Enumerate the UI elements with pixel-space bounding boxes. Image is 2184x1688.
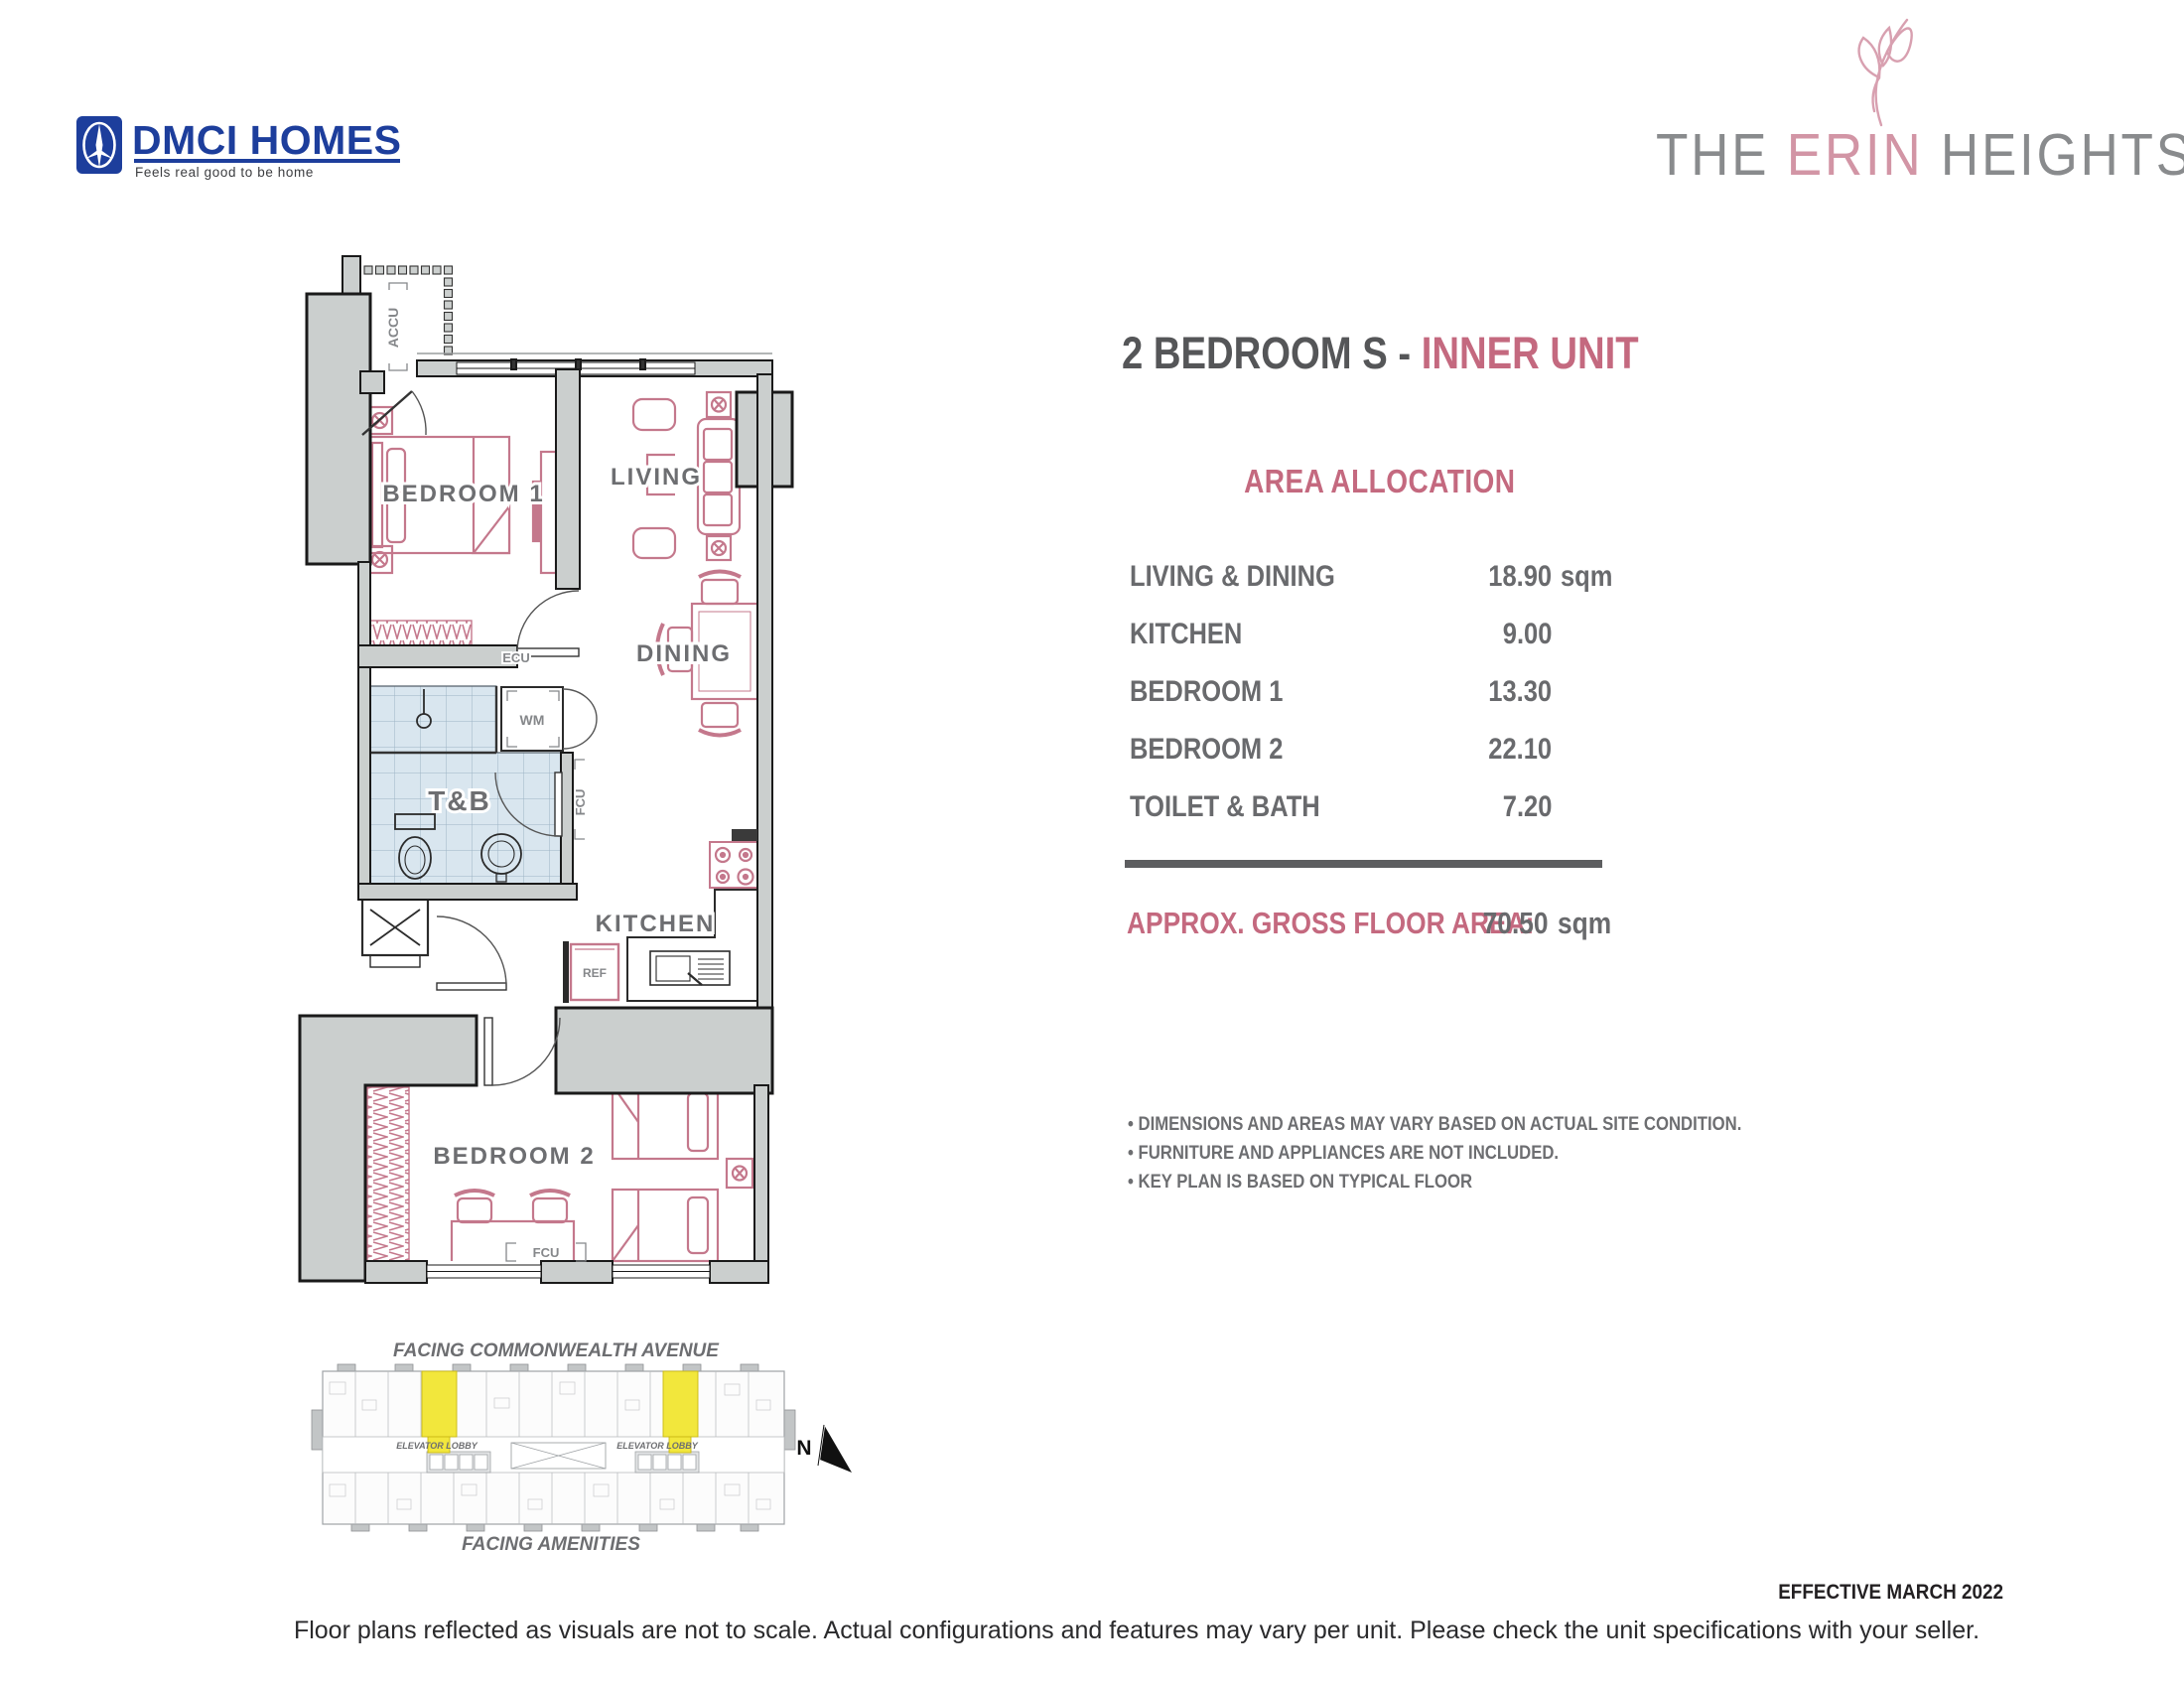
pillar [342,256,360,298]
bedroom2-bed [613,1085,718,1159]
fcu-bedroom2-label: FCU [533,1245,560,1260]
area-row: LIVING & DINING 18.90 sqm [1130,560,1371,596]
unit-title-main: 2 BEDROOM S - [1122,328,1422,378]
area-row-value: 18.90 [1488,560,1552,594]
right-wall [757,374,772,1029]
living-side-table [707,392,731,417]
key-plan: FACING COMMONWEALTH AVENUE [308,1340,864,1559]
unit-title: 2 BEDROOM S - INNER UNIT [1032,328,1727,379]
dining-label: DINING [636,640,732,667]
ref-label: REF [583,966,607,980]
dmci-logo-underline [134,159,400,163]
bedroom2-bed [613,1190,718,1261]
toilet-bath-bottom-wall [358,884,577,900]
wm-double-doors [563,689,597,749]
erin-logo-the: THE [1656,122,1787,188]
living-armchair [633,399,675,430]
dining-chair [699,703,741,736]
area-row: TOILET & BATH 7.20 [1130,790,1354,826]
area-row: BEDROOM 1 13.30 [1130,675,1310,711]
bedroom2-label: BEDROOM 2 [433,1143,595,1170]
floor-plan-drawing: ACCU WM ECU FCU FCU REF BEDROOM 1 LIVING… [213,179,839,1301]
bedroom2-chair [530,1191,570,1222]
note-line: • DIMENSIONS AND AREAS MAY VARY BASED ON… [1128,1114,1826,1136]
balcony-door [362,391,426,435]
effective-date: EFFECTIVE MARCH 2022 [1753,1581,2003,1605]
area-allocation-heading: AREA ALLOCATION [1032,463,1727,500]
erin-logo-erin: ERIN [1787,122,1924,188]
accu-label: ACCU [385,308,401,348]
elevator-lobby-label: ELEVATOR LOBBY [396,1441,478,1451]
bedroom2-door [484,1018,560,1085]
area-row-value: 13.30 [1488,675,1552,709]
bedroom2-top-wall [556,1008,772,1093]
disclaimer-text: Floor plans reflected as visuals are not… [154,1617,2119,1645]
erin-leaf-icon [1830,16,1915,127]
note-line: • KEY PLAN IS BASED ON TYPICAL FLOOR [1128,1172,1519,1194]
key-plan-bottom-label: FACING AMENITIES [462,1534,640,1555]
toilet-bath-label: T&B [428,785,491,816]
area-row-value: 22.10 [1488,733,1552,767]
kitchen-label: KITCHEN [596,911,716,937]
area-row: KITCHEN 9.00 [1130,618,1262,653]
gross-floor-area-value: 70.50 [1483,906,1549,941]
erin-logo-heights: HEIGHTS [1923,122,2184,188]
ecu-label: ECU [502,650,529,665]
area-row-unit: sqm [1561,560,1612,594]
dmci-logo-icon [76,116,122,174]
key-plan-building: ELEVATOR LOBBY ELEVATOR LOBBY [312,1364,795,1531]
north-label: N [796,1437,811,1460]
key-plan-top-label: FACING COMMONWEALTH AVENUE [393,1340,720,1361]
bedroom2-nightstand [727,1159,752,1188]
bottom-wall-pier [541,1261,613,1283]
bedroom2-wardrobe [367,1087,409,1261]
fcu-hall-label: FCU [573,789,588,816]
left-wall [358,562,370,900]
north-arrow-icon [818,1425,852,1473]
living-armchair [633,528,675,558]
gross-floor-area-row: APPROX. GROSS FLOOR AREA: 70.50 sqm [1127,906,1606,941]
partition-wall [556,369,580,589]
gross-floor-area-unit: sqm [1558,906,1611,941]
entry-door [437,916,506,990]
dmci-logo-text: DMCI HOMES [132,117,402,164]
dining-chair [699,572,741,605]
kitchen-stove [710,842,757,888]
toilet-bath-right-wall [561,753,573,884]
area-row-value: 7.20 [1502,790,1552,824]
wm-label: WM [520,712,545,728]
area-row: BEDROOM 2 22.10 [1130,733,1310,769]
area-row-label: BEDROOM 1 [1130,675,1283,709]
dmci-logo-tagline: Feels real good to be home [135,165,314,180]
bedroom1-dresser [541,452,556,573]
table-divider [1125,860,1602,868]
unit-title-highlight: INNER UNIT [1421,328,1638,378]
bedroom1-bottom-wall [358,645,517,667]
bedroom1-label: BEDROOM 1 [382,481,544,507]
area-row-label: KITCHEN [1130,618,1242,651]
note-line: • FURNITURE AND APPLIANCES ARE NOT INCLU… [1128,1143,1617,1165]
area-row-label: TOILET & BATH [1130,790,1320,824]
shaft-box [362,900,428,967]
area-row-label: BEDROOM 2 [1130,733,1283,767]
elevator-lobby-label: ELEVATOR LOBBY [616,1441,699,1451]
bedroom2-right-wall [754,1085,768,1263]
area-row-value: 9.00 [1502,618,1552,651]
living-label: LIVING [611,464,702,491]
pillar [307,294,370,564]
floor-plan-page: DMCI HOMES Feels real good to be home TH… [0,0,2184,1688]
bedroom2-chair [455,1191,494,1222]
kitchen-counter [627,890,757,1001]
bottom-wall-pier [365,1261,427,1283]
erin-heights-logo: THE ERIN HEIGHTS [1656,121,2184,189]
area-row-label: LIVING & DINING [1130,560,1335,594]
wall-stub [360,371,384,393]
living-side-table [707,536,731,560]
bedroom1-door [517,591,579,656]
bottom-wall-pier [710,1261,768,1283]
